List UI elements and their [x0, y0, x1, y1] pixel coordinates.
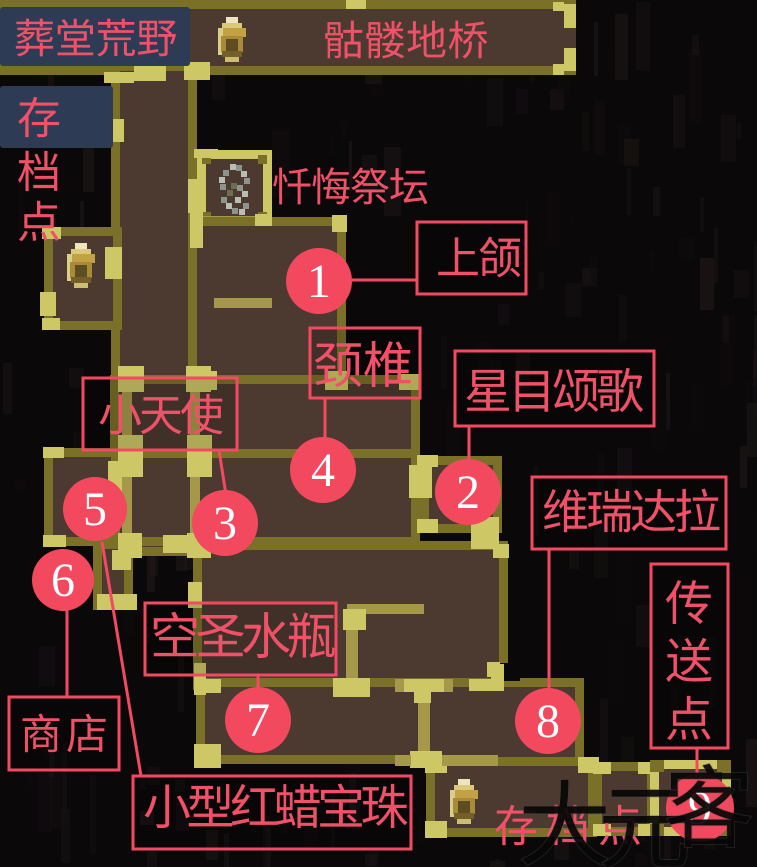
svg-text:4: 4: [311, 444, 335, 497]
svg-text:5: 5: [83, 483, 107, 536]
svg-text:7: 7: [246, 694, 270, 747]
svg-text:6: 6: [51, 554, 75, 607]
svg-text:2: 2: [456, 466, 480, 519]
svg-text:8: 8: [536, 695, 560, 748]
svg-text:1: 1: [307, 255, 331, 308]
svg-text:3: 3: [213, 497, 237, 550]
